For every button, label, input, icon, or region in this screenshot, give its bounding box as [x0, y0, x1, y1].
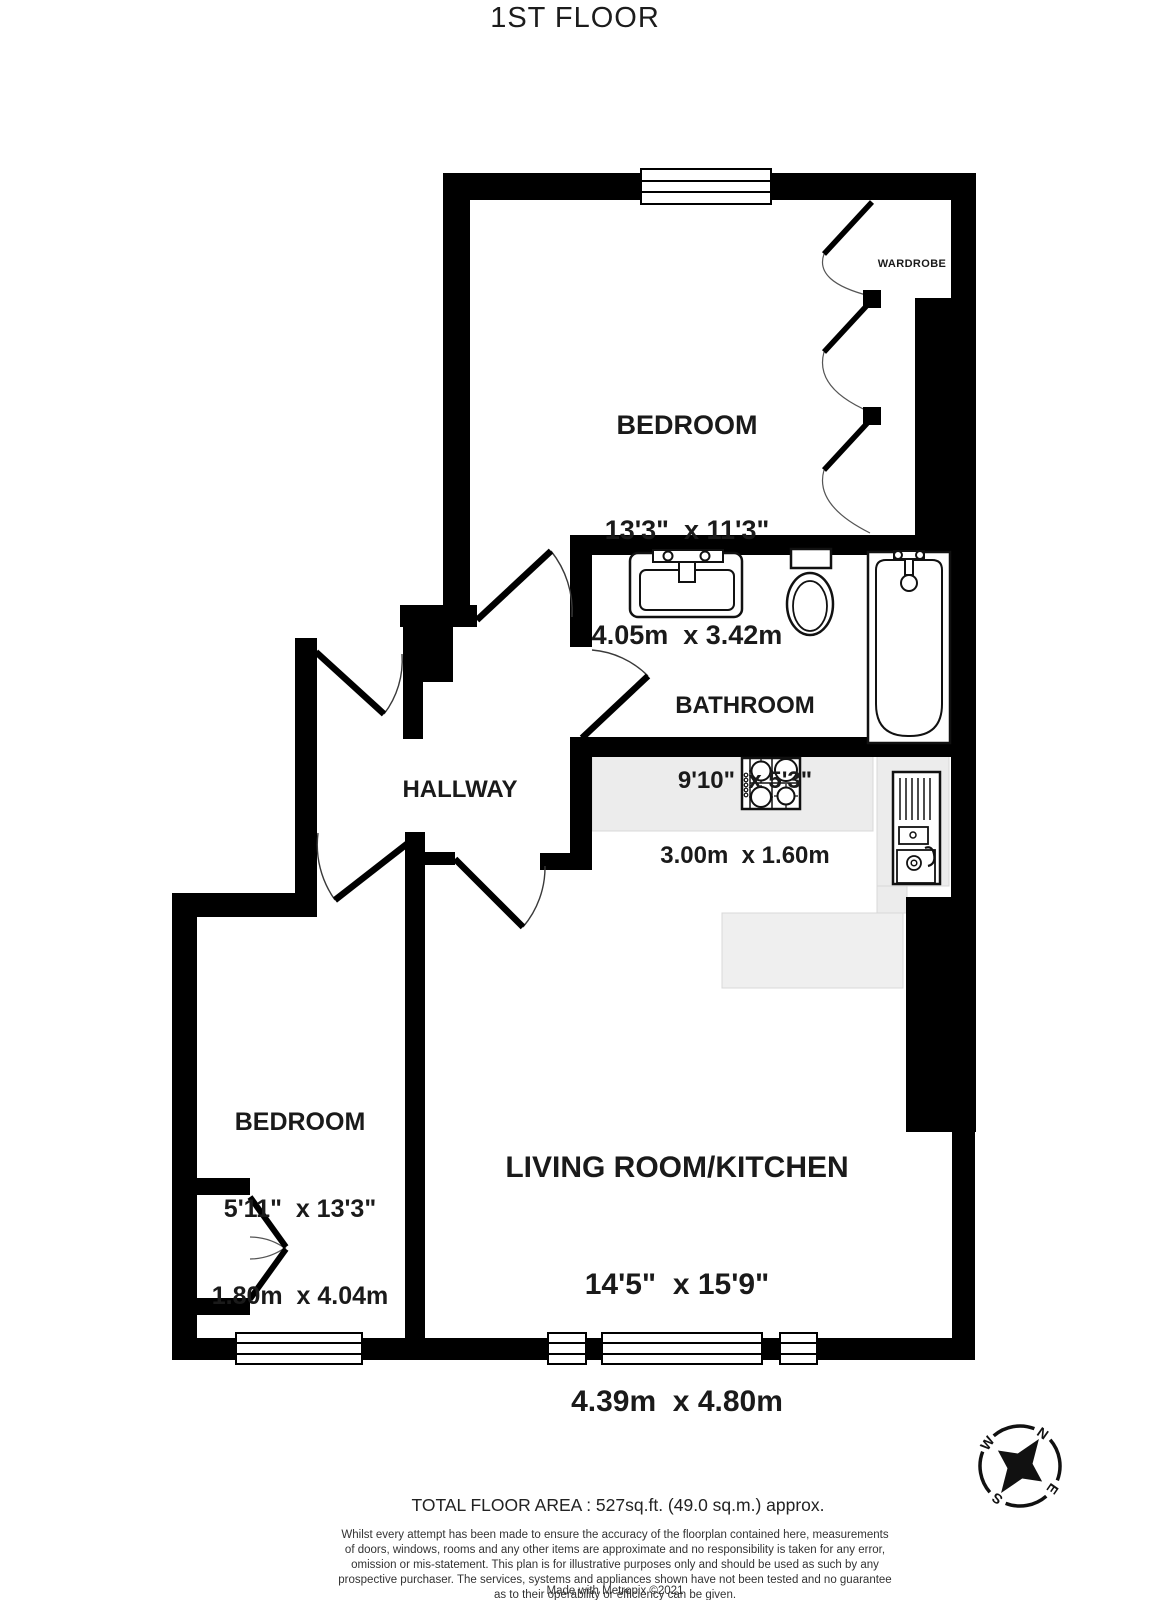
room-name: LIVING ROOM/KITCHEN	[505, 1148, 848, 1187]
room-label-bedroom2: BEDROOM 5'11" x 13'3" 1.80m x 4.04m	[212, 1050, 389, 1369]
room-dims-imperial: 9'10" x 5'3"	[660, 768, 829, 793]
compass-n: N	[1034, 1424, 1051, 1443]
room-dims-metric: 3.00m x 1.60m	[660, 843, 829, 868]
room-name: BEDROOM	[212, 1108, 389, 1137]
room-dims-metric: 1.80m x 4.04m	[212, 1282, 389, 1311]
total-floor-area: TOTAL FLOOR AREA : 527sq.ft. (49.0 sq.m.…	[411, 1495, 824, 1516]
room-dims-imperial: 14'5" x 15'9"	[505, 1265, 848, 1304]
wardrobe-label: WARDROBE	[878, 258, 947, 270]
living-room-door	[455, 859, 545, 927]
floorplan-page: 1ST FLOOR	[0, 0, 1149, 1600]
entry-door	[316, 652, 402, 714]
compass-e: E	[1044, 1481, 1062, 1498]
bedroom2-door	[317, 833, 412, 900]
compass-rose: N E S W	[953, 1399, 1087, 1533]
bathtub	[868, 551, 950, 743]
room-label-hallway: HALLWAY	[402, 777, 517, 803]
disclaimer-line: of doors, windows, rooms and any other i…	[345, 1544, 885, 1556]
kitchen-sink-unit	[893, 772, 940, 884]
bedroom-door	[477, 551, 572, 620]
window	[641, 169, 771, 204]
disclaimer-line: Whilst every attempt has been made to en…	[341, 1529, 888, 1541]
compass-star	[979, 1423, 1061, 1508]
room-label-living-room-kitchen: LIVING ROOM/KITCHEN 14'5" x 15'9" 4.39m …	[505, 1070, 848, 1499]
toilet	[787, 549, 833, 635]
wardrobe-bifold-doors	[822, 202, 881, 533]
page-title: 1ST FLOOR	[490, 2, 660, 35]
room-label-bathroom: BATHROOM 9'10" x 5'3" 3.00m x 1.60m	[660, 643, 829, 918]
room-dims-imperial: 13'3" x 11'3"	[592, 513, 783, 548]
room-name: BATHROOM	[660, 693, 829, 718]
disclaimer-line: omission or mis-statement. This plan is …	[351, 1559, 879, 1571]
room-dims-metric: 4.39m x 4.80m	[505, 1382, 848, 1421]
room-name: BEDROOM	[592, 408, 783, 443]
metropix-credit: Made with Metropix ©2021	[547, 1585, 684, 1597]
room-dims-imperial: 5'11" x 13'3"	[212, 1195, 389, 1224]
compass-s: S	[989, 1490, 1006, 1508]
